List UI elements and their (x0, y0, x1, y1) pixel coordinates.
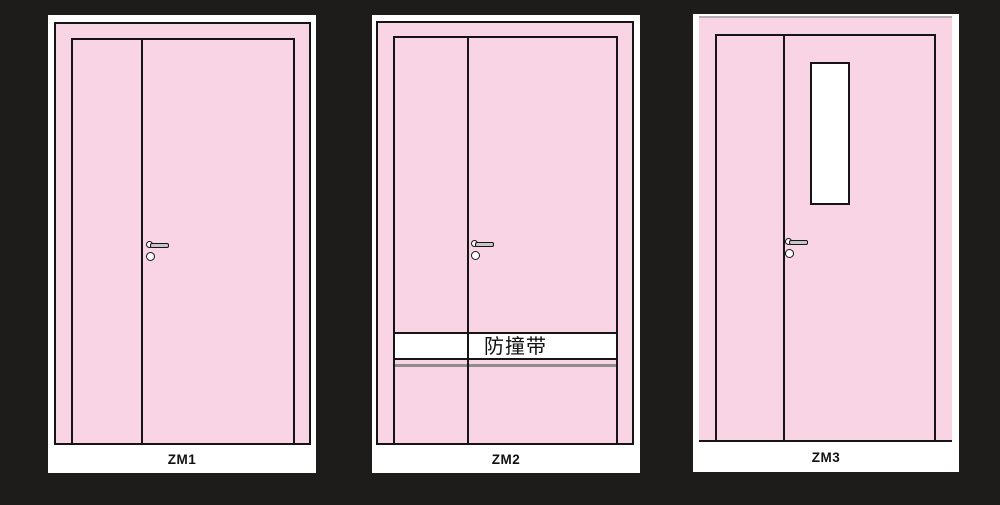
door-label-text: ZM3 (812, 450, 841, 465)
door-figure-zm1: ZM1 (48, 15, 316, 473)
anti-collision-band-label: 防撞带 (484, 334, 547, 358)
handle-knob-icon (785, 249, 794, 258)
anti-collision-band-shadow-line (395, 364, 616, 367)
door-handle-icon (785, 238, 811, 260)
vision-panel-window (810, 62, 850, 205)
door-figure-zm2: 防撞带 ZM2 (372, 15, 640, 473)
anti-collision-band: 防撞带 (395, 332, 616, 360)
door-label: ZM2 (372, 445, 640, 473)
door-leaves (71, 38, 295, 445)
door-leaves: 防撞带 (393, 36, 618, 445)
door-frame (54, 22, 311, 445)
door-frame (699, 16, 952, 442)
door-leaves (715, 34, 936, 442)
leaf-separator-line (467, 38, 469, 443)
door-figure-zm3: ZM3 (693, 14, 959, 472)
door-frame: 防撞带 (376, 21, 634, 445)
handle-knob-icon (146, 252, 155, 261)
door-label: ZM3 (693, 442, 959, 472)
door-handle-icon (146, 241, 172, 263)
handle-lever-icon (475, 242, 494, 247)
handle-lever-icon (150, 243, 169, 248)
handle-lever-icon (789, 240, 808, 245)
door-label-text: ZM1 (168, 452, 197, 467)
leaf-separator-line (141, 40, 143, 443)
door-handle-icon (471, 240, 497, 262)
door-label: ZM1 (48, 445, 316, 473)
handle-knob-icon (471, 251, 480, 260)
door-label-text: ZM2 (492, 452, 521, 467)
